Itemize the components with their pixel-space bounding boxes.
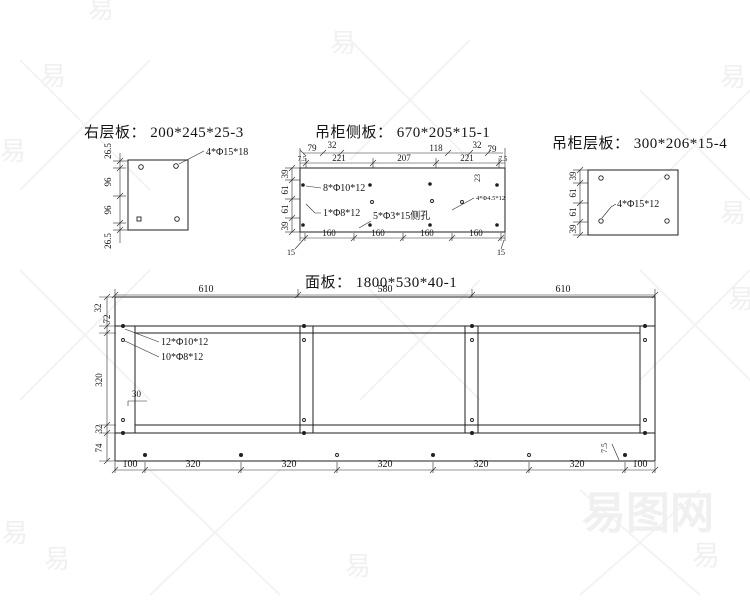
hole [302, 431, 306, 435]
hole [121, 324, 125, 328]
dim-label: 7.5 [298, 155, 307, 163]
watermark-glyph: 易 [2, 519, 28, 548]
hole [428, 182, 432, 186]
dim-label: 7.5 [499, 155, 508, 163]
hole [644, 339, 647, 342]
hole [643, 431, 647, 435]
watermark-glyph: 易 [40, 62, 66, 91]
dim-label: 221 [332, 153, 346, 163]
dim-label: 39 [568, 224, 578, 234]
hole-spec-label: 4*Φ15*18 [206, 147, 248, 158]
technical-drawing-sheet: 易 易 易 易 易 易 易 易 易 易 易 易图网 右层板： 200*245*2… [0, 0, 750, 600]
dim-label: 61 [280, 205, 290, 214]
hole [139, 165, 144, 170]
hole-spec-label: 4*Φ15*12 [617, 199, 659, 210]
hole [143, 453, 147, 457]
hole [470, 431, 474, 435]
drawing2-title: 吊柜侧板： 670*205*15-1 [315, 123, 490, 141]
dim-label: 320 [474, 459, 489, 470]
watermark-glyph: 易 [345, 552, 371, 581]
hole [303, 339, 306, 342]
hole-spec-label: 5*Φ3*15侧孔 [373, 209, 430, 222]
hole [174, 164, 179, 169]
dim-label: 72 [102, 315, 112, 324]
panel-outline [115, 297, 655, 461]
hole [528, 454, 531, 457]
dim-label: 580 [378, 284, 393, 295]
hole [599, 219, 603, 223]
drawing-right-shelf-board: 右层板： 200*245*25-3 4*Φ15*18 26.5 96 96 26… [84, 123, 248, 249]
dim-label: 160 [420, 228, 434, 238]
side-hole [431, 200, 434, 203]
dim-label: 15 [287, 248, 295, 257]
hole [302, 324, 306, 328]
dim-label: 32 [328, 140, 337, 150]
dim-label: 96 [103, 177, 113, 187]
dim-label: 221 [460, 153, 474, 163]
hole [303, 419, 306, 422]
watermark-glyph: 易 [88, 0, 114, 24]
dim-label: 610 [556, 284, 571, 295]
hole-spec-label: 12*Φ10*12 [161, 337, 208, 348]
dim-label: 100 [123, 459, 138, 470]
dim-label: 61 [568, 208, 578, 217]
dim-label: 160 [371, 228, 385, 238]
drawing-face-panel: 面板： 1800*530*40-1 610 580 610 [93, 273, 658, 473]
dim-label: 160 [322, 228, 336, 238]
dim-label: 39 [280, 221, 290, 231]
hole [665, 175, 669, 179]
hole-spec-label: 10*Φ8*12 [161, 352, 203, 363]
watermark-glyph: 易 [720, 199, 746, 228]
hole [368, 223, 372, 227]
dim-label: 79 [488, 144, 498, 154]
drawing-svg: 易 易 易 易 易 易 易 易 易 易 易 易图网 右层板： 200*245*2… [0, 0, 750, 600]
dim-label: 320 [378, 459, 393, 470]
dim-label: 320 [570, 459, 585, 470]
watermark-glyph: 易 [330, 29, 356, 58]
hole [599, 176, 603, 180]
dim-label: 320 [186, 459, 201, 470]
dim-label: 96 [103, 205, 113, 215]
watermark-glyph: 易 [720, 63, 746, 92]
drawing-cabinet-side-board: 吊柜侧板： 670*205*15-1 79 32 118 32 79 7.5 2… [280, 123, 508, 257]
dim-label: 100 [633, 459, 648, 470]
dim-label: 118 [429, 143, 443, 153]
dim-label: 32 [473, 140, 482, 150]
dim-label: 23 [473, 174, 482, 182]
hole [121, 431, 125, 435]
dim-label: 320 [94, 373, 104, 387]
watermark-glyph: 易 [0, 137, 26, 166]
hole [644, 419, 647, 422]
hole [495, 183, 499, 187]
hole [495, 223, 499, 227]
hole [301, 223, 305, 227]
dim-label: 26.5 [103, 233, 113, 249]
hole [368, 183, 372, 187]
watermark-glyph: 易 [44, 545, 70, 574]
dim-label: 32 [94, 425, 104, 434]
dim-label: 320 [282, 459, 297, 470]
dim-label: 15 [497, 248, 505, 257]
dim-label: 74 [94, 443, 104, 453]
hole [623, 453, 627, 457]
hole [665, 219, 669, 223]
drawing1-title: 右层板： 200*245*25-3 [84, 123, 244, 141]
dim-label: 61 [568, 189, 578, 198]
dim-label: 39 [280, 169, 290, 179]
watermark-glyph: 易 [728, 285, 750, 314]
watermark-site-name: 易图网 [582, 489, 714, 538]
watermark-glyph: 易 [692, 541, 720, 572]
dim-label: 26.5 [103, 143, 113, 159]
hole [471, 419, 474, 422]
dim-label: 30 [132, 389, 142, 399]
hole-spec-label: 4*Φ4.5*12 [476, 195, 505, 202]
hole [428, 223, 432, 227]
hole [175, 217, 180, 222]
hole [301, 183, 305, 187]
hole [122, 339, 125, 342]
dim-label: 39 [568, 171, 578, 181]
dim-label: 160 [469, 228, 483, 238]
dim-label: 79 [308, 143, 318, 153]
side-hole [371, 201, 374, 204]
hole [336, 454, 339, 457]
hole [137, 217, 141, 221]
hole [239, 453, 243, 457]
hole [471, 339, 474, 342]
side-hole [461, 201, 464, 204]
dim-label: 61 [280, 186, 290, 195]
hole-spec-label: 8*Φ10*12 [323, 183, 365, 194]
dim-label: 7.5 [600, 443, 609, 453]
hole [122, 419, 125, 422]
drawing3-title: 吊柜层板： 300*206*15-4 [552, 134, 727, 152]
dim-label: 32 [93, 304, 103, 313]
hole [643, 324, 647, 328]
drawing-cabinet-shelf-board: 吊柜层板： 300*206*15-4 4*Φ15*12 39 61 61 39 [552, 134, 727, 238]
dim-label: 610 [199, 284, 214, 295]
hole [470, 324, 474, 328]
dim-label: 207 [397, 153, 411, 163]
hole [431, 453, 435, 457]
hole-spec-label: 1*Φ8*12 [323, 208, 360, 219]
